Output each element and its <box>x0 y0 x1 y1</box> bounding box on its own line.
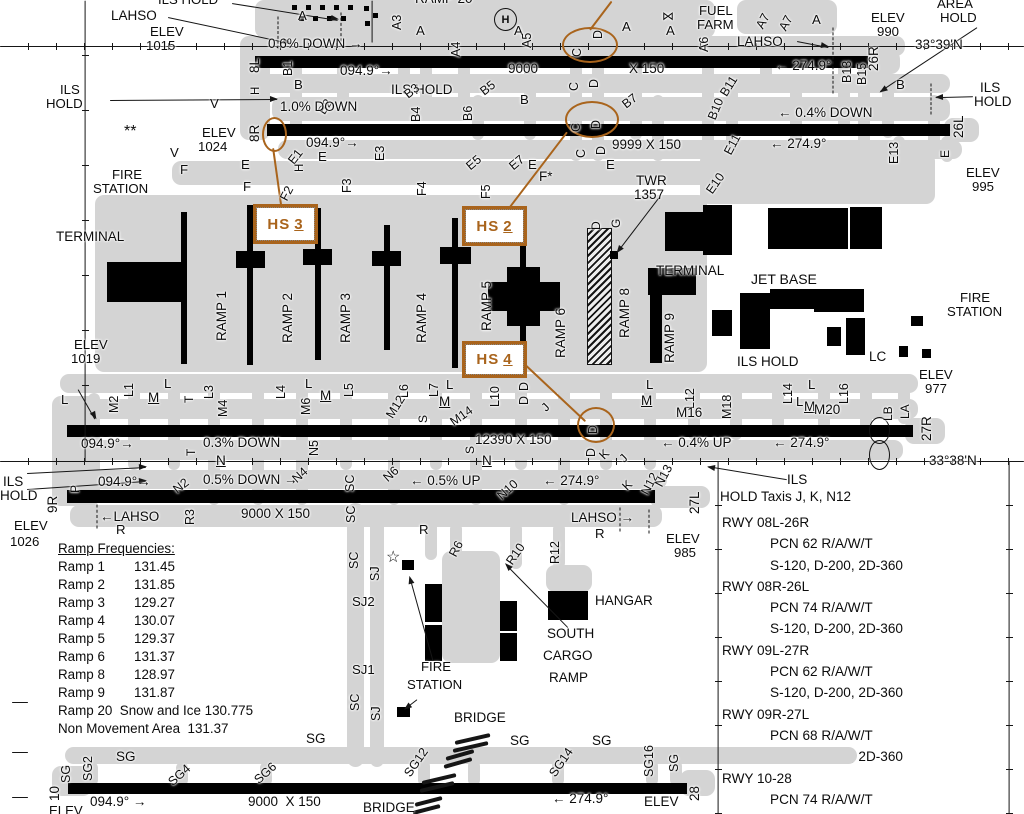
ramp-label: RAMP 20 <box>415 0 473 6</box>
taxiway-label: E <box>318 150 327 163</box>
graticule-tick <box>560 458 561 465</box>
ramp-name: Ramp 1 <box>58 558 134 576</box>
latitude-label: 33°39'N <box>915 38 963 52</box>
graticule-tick <box>476 43 477 50</box>
graticule-tick <box>672 458 673 465</box>
graticule-tick <box>1006 549 1013 550</box>
taxiway-label: G <box>610 219 622 228</box>
ramp-frequency-row: Ramp 9131.87 <box>58 684 253 702</box>
taxiway-label: A3 <box>391 15 404 30</box>
taxiway-label: LC <box>869 350 886 364</box>
facility-label: FIRE <box>112 168 142 181</box>
graticule-tick <box>1006 725 1013 726</box>
runway-number: 26L <box>952 115 966 138</box>
ramp-name: Ramp 9 <box>58 684 134 702</box>
hold-label: ←LAHSO <box>100 510 159 524</box>
facility-label: TERMINAL <box>656 264 724 278</box>
building <box>107 262 187 302</box>
taxiway-label: SOUTH <box>547 627 594 641</box>
graticule-tick <box>504 43 505 50</box>
graticule-tick <box>82 55 89 56</box>
runway <box>67 490 655 503</box>
elevation-label: ELEV <box>202 126 236 139</box>
taxiway-label: D <box>595 146 608 155</box>
ramp-name: Ramp 3 <box>58 594 134 612</box>
taxiway-label: D <box>518 382 531 391</box>
taxiway-label: P <box>69 485 81 493</box>
building <box>650 268 662 363</box>
building <box>402 560 414 570</box>
taxiway-label: L <box>808 378 815 391</box>
building <box>303 249 332 265</box>
taxiway-label: L <box>646 378 653 391</box>
arrowhead <box>270 95 278 101</box>
ramp-label: RAMP 4 <box>415 293 429 343</box>
graticule-tick <box>728 458 729 465</box>
graticule-tick <box>504 458 505 465</box>
elevation-label: 1026 <box>10 535 39 548</box>
graticule-tick <box>700 458 701 465</box>
graticule-tick <box>252 458 253 465</box>
facility-label: FIRE <box>421 660 451 673</box>
graticule-tick <box>756 458 757 465</box>
taxiway-label: SG16 <box>643 745 656 777</box>
international-terminal-building <box>587 228 612 365</box>
taxiway-label: LB <box>882 406 894 421</box>
taxiway-label: M20 <box>814 403 840 417</box>
taxiway-label: A <box>666 24 675 37</box>
ramp-label: RAMP 2 <box>281 293 295 343</box>
building <box>181 212 187 364</box>
gradient-label: 0.5% DOWN → <box>203 473 298 487</box>
gradient-label: ← 0.4% UP <box>661 436 732 450</box>
taxiway-label: M <box>439 395 450 409</box>
ramp-frequency: 131.87 <box>134 684 175 702</box>
taxiway-label: R12 <box>549 541 562 564</box>
taxiway-label: D <box>592 30 605 39</box>
taxiway-label: D <box>590 120 603 129</box>
taxiway-label: N5 <box>308 440 321 456</box>
taxiway-label: SG <box>510 734 530 748</box>
building <box>548 591 588 620</box>
taxiway-segment <box>172 161 712 185</box>
taxiway-label: A5 <box>521 33 534 48</box>
building <box>373 13 378 18</box>
graticule-tick <box>980 458 981 465</box>
elevation-label: 1015 <box>146 39 175 52</box>
taxiway-label: T <box>183 396 195 403</box>
building <box>425 584 442 622</box>
runway-pcn: PCN 62 R/A/W/T <box>722 661 903 682</box>
hold-label: ILS <box>60 83 80 96</box>
building <box>911 316 923 326</box>
gradient-label: 0.3% DOWN <box>203 436 280 450</box>
taxiway-label: B13 <box>841 61 854 83</box>
runway-number: 9R <box>46 496 60 513</box>
ramp-name: Ramp 2 <box>58 576 134 594</box>
ramp-frequency: 131.85 <box>134 576 175 594</box>
taxiway-label: L <box>446 378 453 391</box>
ramp-name: Ramp 6 <box>58 648 134 666</box>
runway-id: RWY 08R-26L <box>722 576 903 597</box>
graticule-tick <box>644 43 645 50</box>
taxiway-label: M16 <box>676 406 702 420</box>
facility-label: FIRE <box>960 291 990 304</box>
graticule-tick <box>560 43 561 50</box>
gradient-label: 1.0% DOWN <box>280 100 357 114</box>
taxiway-label: D <box>588 79 601 88</box>
ramp-frequency: 129.37 <box>134 630 175 648</box>
arrowhead <box>935 94 943 100</box>
building <box>440 247 471 264</box>
runway-pcn: PCN 62 R/A/W/T <box>722 533 903 554</box>
ramp-frequency: 129.27 <box>134 594 175 612</box>
graticule-tick <box>364 43 365 50</box>
runway-id: RWY 10-28 <box>722 768 903 789</box>
elevation-label: ELEV <box>14 519 48 532</box>
runway-number: 27L <box>688 491 702 514</box>
taxiway-label: SG <box>116 750 136 764</box>
building <box>348 5 353 10</box>
taxiway-label: LA <box>899 404 911 419</box>
hotspot-number: 4 <box>503 351 512 368</box>
arrowhead <box>139 463 147 469</box>
wind-indicator-icon: ⋈ <box>662 10 674 22</box>
graticule-tick <box>140 43 141 50</box>
latitude-label: 33°38'N <box>929 454 977 468</box>
graticule-tick <box>364 458 365 465</box>
ils-hold-taxis-leader <box>708 466 787 480</box>
taxiway-label: R <box>116 523 126 536</box>
elevation-label: ELEV <box>150 25 184 38</box>
taxiway-label: A <box>298 9 307 22</box>
gradient-label: ← 0.5% UP <box>410 474 481 488</box>
taxiway-label: B <box>294 78 303 91</box>
taxiway-label: M <box>641 394 652 408</box>
runway-gear-loading: S-120, D-200, 2D-360 <box>722 618 903 639</box>
graticule-tick <box>1008 43 1009 50</box>
elevation-label: 1024 <box>198 140 227 153</box>
taxiway-label: S <box>464 446 476 454</box>
elevation-label: ELEV <box>966 166 1000 179</box>
elevation-label: ELEV <box>871 11 905 24</box>
taxiway-label: L4 <box>275 385 288 399</box>
graticule-tick <box>812 458 813 465</box>
graticule-tick <box>448 458 449 465</box>
graticule-tick <box>82 385 89 386</box>
taxiway-label: L5 <box>343 383 356 397</box>
taxiway-label: D <box>518 396 531 405</box>
runway-number: 8L <box>248 58 262 73</box>
elevation-label: 9000 <box>508 62 538 76</box>
facility-label: BRIDGE <box>363 801 415 814</box>
graticule-tick <box>252 43 253 50</box>
taxiway-label: L <box>796 395 803 408</box>
dashed-hold-line <box>833 28 834 94</box>
graticule-tick <box>924 458 925 465</box>
hold-label: ILS HOLD <box>158 0 218 6</box>
building <box>703 205 732 255</box>
graticule-tick <box>1006 593 1013 594</box>
facility-label: JET BASE <box>751 272 817 286</box>
hotspot-label: HS <box>267 216 290 233</box>
ramp-label: RAMP 8 <box>618 288 632 338</box>
taxiway-segment <box>546 565 592 592</box>
taxiway-segment <box>370 520 384 767</box>
dashed-hold-line <box>931 84 932 115</box>
graticule-tick <box>728 43 729 50</box>
graticule-tick <box>224 43 225 50</box>
building <box>899 346 908 357</box>
hold-label: HOLD <box>974 95 1012 109</box>
taxiway-label: X 150 <box>629 62 664 76</box>
gradient-label: ← 0.4% DOWN <box>778 106 873 120</box>
taxiway-label: A <box>812 13 821 26</box>
elevation-label: ELEV <box>74 338 108 351</box>
heading-label: ← 274.9° <box>775 59 831 73</box>
graticule-tick <box>1006 681 1013 682</box>
heading-label: 094.9°→ <box>81 437 134 451</box>
building <box>372 251 401 266</box>
runway-number: 10 <box>48 786 62 801</box>
graticule-tick <box>28 43 29 50</box>
taxiway-label: B <box>520 93 529 106</box>
runway-data-table: RWY 08L-26RPCN 62 R/A/W/TS-120, D-200, 2… <box>722 512 903 810</box>
graticule-tick <box>168 458 169 465</box>
taxiway-label: N <box>482 454 492 468</box>
heading-label: 094.9°→ <box>306 136 359 150</box>
hold-label: HOLD <box>0 489 38 503</box>
ramp-frequency-row: Ramp 5129.37 <box>58 630 253 648</box>
airport-diagram: Ramp Frequencies:Ramp 1131.45Ramp 2131.8… <box>0 0 1024 814</box>
taxiway-label: M2 <box>108 396 121 413</box>
graticule-tick <box>196 43 197 50</box>
ramp-frequencies: Ramp Frequencies:Ramp 1131.45Ramp 2131.8… <box>58 540 253 738</box>
building <box>846 318 865 355</box>
heading-label: 094.9°→ <box>98 475 151 489</box>
taxiway-label: S <box>417 415 429 423</box>
heading-label: ← 274.9° <box>773 436 829 450</box>
graticule-tick <box>715 593 722 594</box>
taxiway-label: F* <box>539 170 553 184</box>
graticule-tick <box>28 458 29 465</box>
graticule-tick <box>56 458 57 465</box>
beacon-icon: ☆ <box>386 550 400 566</box>
graticule-tick <box>82 275 89 276</box>
graticule-tick <box>308 458 309 465</box>
building <box>850 207 882 249</box>
facility-label: STATION <box>93 182 148 195</box>
graticule-tick <box>82 220 89 221</box>
hold-label: ILS <box>787 473 807 487</box>
ramp-frequency-row: Ramp 2131.85 <box>58 576 253 594</box>
ramp-label: RAMP 6 <box>554 308 568 358</box>
building <box>384 225 390 350</box>
runway-number: 28 <box>688 786 702 801</box>
elevation-label: 977 <box>925 382 947 395</box>
building <box>320 5 325 10</box>
hotspot-box: HS2 <box>462 206 527 246</box>
elevation-label: ELEV <box>49 804 83 814</box>
building <box>770 289 814 309</box>
building <box>236 251 265 268</box>
taxiway-label: SC <box>349 694 362 711</box>
elevation-label: 985 <box>674 546 696 559</box>
runway-number: 26R <box>867 46 881 71</box>
heading-label: ← 274.9° <box>552 792 608 806</box>
graticule-tick <box>715 725 722 726</box>
ramp-name: Ramp 8 <box>58 666 134 684</box>
taxiway-label: F <box>243 180 251 193</box>
taxiway-label: SJ <box>370 706 383 721</box>
symbol-circle <box>869 440 890 470</box>
elevation-label: 995 <box>972 180 994 193</box>
taxiway-label: SJ2 <box>352 595 375 608</box>
hotspot-number: 3 <box>294 216 303 233</box>
ramp-frequency: 131.45 <box>134 558 175 576</box>
taxiway-label: A6 <box>698 37 711 52</box>
elevation-label: 1019 <box>71 352 100 365</box>
dashed-hold-line <box>649 510 650 534</box>
graticule-tick <box>336 458 337 465</box>
graticule-tick <box>715 769 722 770</box>
ramp-frequency-row: Ramp 6131.37 <box>58 648 253 666</box>
building <box>507 267 540 326</box>
ramp-frequency: 130.07 <box>134 612 175 630</box>
runway-pcn: PCN 74 R/A/W/T <box>722 789 903 810</box>
heading-label: ← 274.9° <box>770 137 826 151</box>
taxiway-label: E <box>241 158 250 171</box>
taxiway-label: E13 <box>888 142 901 164</box>
taxiway-label: R3 <box>184 509 197 525</box>
ramp-frequencies-title: Ramp Frequencies: <box>58 540 253 558</box>
graticule-tick <box>196 458 197 465</box>
taxiway-label: F3 <box>341 178 354 193</box>
hold-label: LAHSO <box>111 9 157 23</box>
taxiway-label: A <box>622 20 631 33</box>
graticule-tick <box>420 43 421 50</box>
ramp-frequency-extra: Non Movement Area 131.37 <box>58 720 253 738</box>
heading-label: ← 274.9° <box>543 474 599 488</box>
graticule-tick <box>532 458 533 465</box>
map-line <box>12 797 28 798</box>
taxiway-label: L3 <box>203 385 216 399</box>
building <box>740 293 770 349</box>
building <box>341 16 346 21</box>
heading-label: 094.9°→ <box>340 64 393 78</box>
hold-label: ILS <box>3 475 23 489</box>
taxiway-label: L14 <box>782 383 795 404</box>
taxiway-label: H <box>295 164 307 172</box>
hold-label: HOLD <box>46 97 83 110</box>
taxiway-label: A <box>416 24 425 37</box>
facility-label: HANGAR <box>595 594 653 608</box>
ramp-frequency-row: Ramp 4130.07 <box>58 612 253 630</box>
facility-label: FARM <box>697 18 734 31</box>
taxiway-label: SJ1 <box>352 663 375 676</box>
taxiway-label: D <box>587 425 600 434</box>
building <box>922 349 931 358</box>
ramp-name: Ramp 5 <box>58 630 134 648</box>
taxiway-label: D <box>590 221 602 230</box>
runway-id: RWY 08L-26R <box>722 512 903 533</box>
building <box>452 218 458 368</box>
graticule-tick <box>616 458 617 465</box>
facility-label: BRIDGE <box>454 711 506 725</box>
hotspot-circle <box>562 27 618 63</box>
ramp-frequency-row: Ramp 1131.45 <box>58 558 253 576</box>
taxiway-label: N <box>216 454 226 468</box>
taxiway-label: B4 <box>410 107 423 122</box>
taxiway-label: A4 <box>450 42 463 57</box>
taxiway-label: F <box>180 163 188 176</box>
taxiway-label: M18 <box>721 395 734 419</box>
graticule-tick <box>896 43 897 50</box>
taxiway-label: ** <box>124 124 136 140</box>
taxiway-label: L1 <box>123 383 136 397</box>
graticule-tick <box>896 458 897 465</box>
elevation-label: 1357 <box>634 188 664 202</box>
building <box>364 6 369 11</box>
taxiway-label: SG <box>592 734 612 748</box>
ramp-frequency: 131.37 <box>134 648 175 666</box>
building <box>712 310 732 336</box>
taxiway-label: M6 <box>300 398 313 415</box>
graticule-tick <box>840 458 841 465</box>
building <box>365 21 370 26</box>
hotspot-circle <box>262 117 287 152</box>
taxiway-label: E <box>606 158 615 171</box>
building <box>814 289 864 312</box>
facility-label: STATION <box>407 678 462 691</box>
taxiway-segment <box>347 503 364 767</box>
ramp-name: Ramp 4 <box>58 612 134 630</box>
taxiway-label: B6 <box>462 106 475 121</box>
building <box>292 5 297 10</box>
ramp-frequency-row: Ramp 3129.27 <box>58 594 253 612</box>
graticule-tick <box>112 43 113 50</box>
graticule-tick <box>672 43 673 50</box>
runway-gear-loading: S-120, D-200, 2D-360 <box>722 555 903 576</box>
taxiway-label: 9999 X 150 <box>612 138 681 152</box>
taxiway-label: R <box>419 523 429 536</box>
taxiway-label: L <box>61 393 68 406</box>
graticule-tick <box>56 43 57 50</box>
taxiway-label: L16 <box>838 383 851 404</box>
graticule-tick <box>112 458 113 465</box>
graticule-tick <box>840 43 841 50</box>
taxiway-label: SG <box>306 732 326 746</box>
hotspot-box: HS4 <box>462 341 527 378</box>
facility-label: TWR <box>636 174 667 188</box>
map-line <box>12 702 28 703</box>
taxiway-label: B <box>896 78 905 91</box>
taxiway-label: SC <box>345 506 358 523</box>
building <box>665 212 703 251</box>
taxiway-label: C <box>570 123 583 132</box>
taxiway-label: SG <box>60 765 73 783</box>
hotspot-label: HS <box>476 351 499 368</box>
hotspot-box: HS3 <box>253 204 318 244</box>
taxiway-connector <box>838 36 850 136</box>
facility-label: AREA <box>937 0 973 10</box>
taxiway-label: F4 <box>416 181 429 196</box>
graticule-tick <box>784 458 785 465</box>
graticule-tick <box>715 681 722 682</box>
facility-label: TERMINAL <box>56 230 124 244</box>
taxiway-label: L10 <box>489 386 502 407</box>
hold-label: HOLD Taxis J, K, N12 <box>720 490 851 504</box>
